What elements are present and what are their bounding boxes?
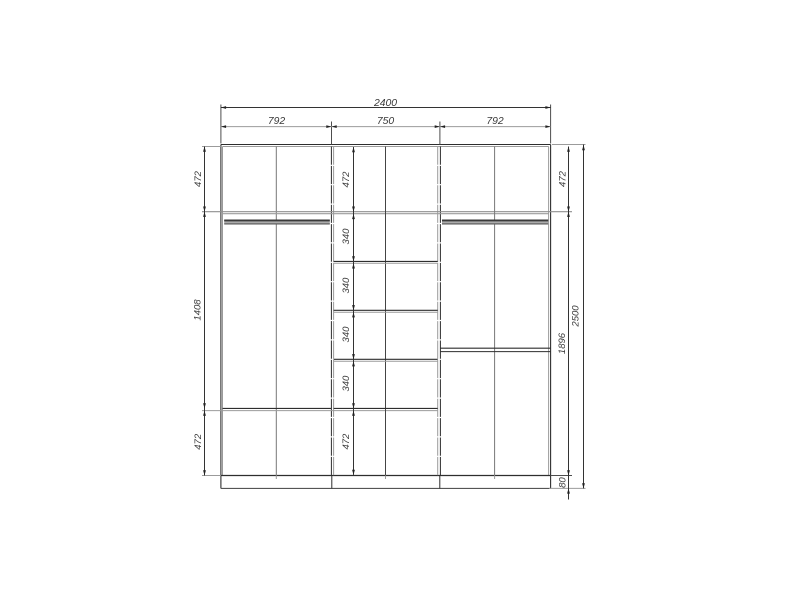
svg-text:340: 340: [341, 326, 352, 343]
svg-text:472: 472: [193, 433, 204, 450]
svg-text:2400: 2400: [373, 98, 397, 109]
svg-text:472: 472: [341, 171, 352, 188]
svg-text:340: 340: [341, 375, 352, 392]
svg-text:1408: 1408: [193, 299, 204, 321]
svg-text:1896: 1896: [557, 332, 568, 354]
svg-text:340: 340: [341, 277, 352, 294]
svg-text:472: 472: [341, 433, 352, 450]
svg-text:80: 80: [558, 477, 569, 488]
svg-text:750: 750: [377, 116, 395, 127]
svg-text:792: 792: [486, 116, 504, 127]
svg-text:472: 472: [558, 170, 569, 187]
svg-text:2500: 2500: [570, 305, 581, 328]
svg-text:472: 472: [193, 170, 204, 187]
svg-text:340: 340: [341, 228, 352, 245]
svg-text:792: 792: [268, 116, 286, 127]
